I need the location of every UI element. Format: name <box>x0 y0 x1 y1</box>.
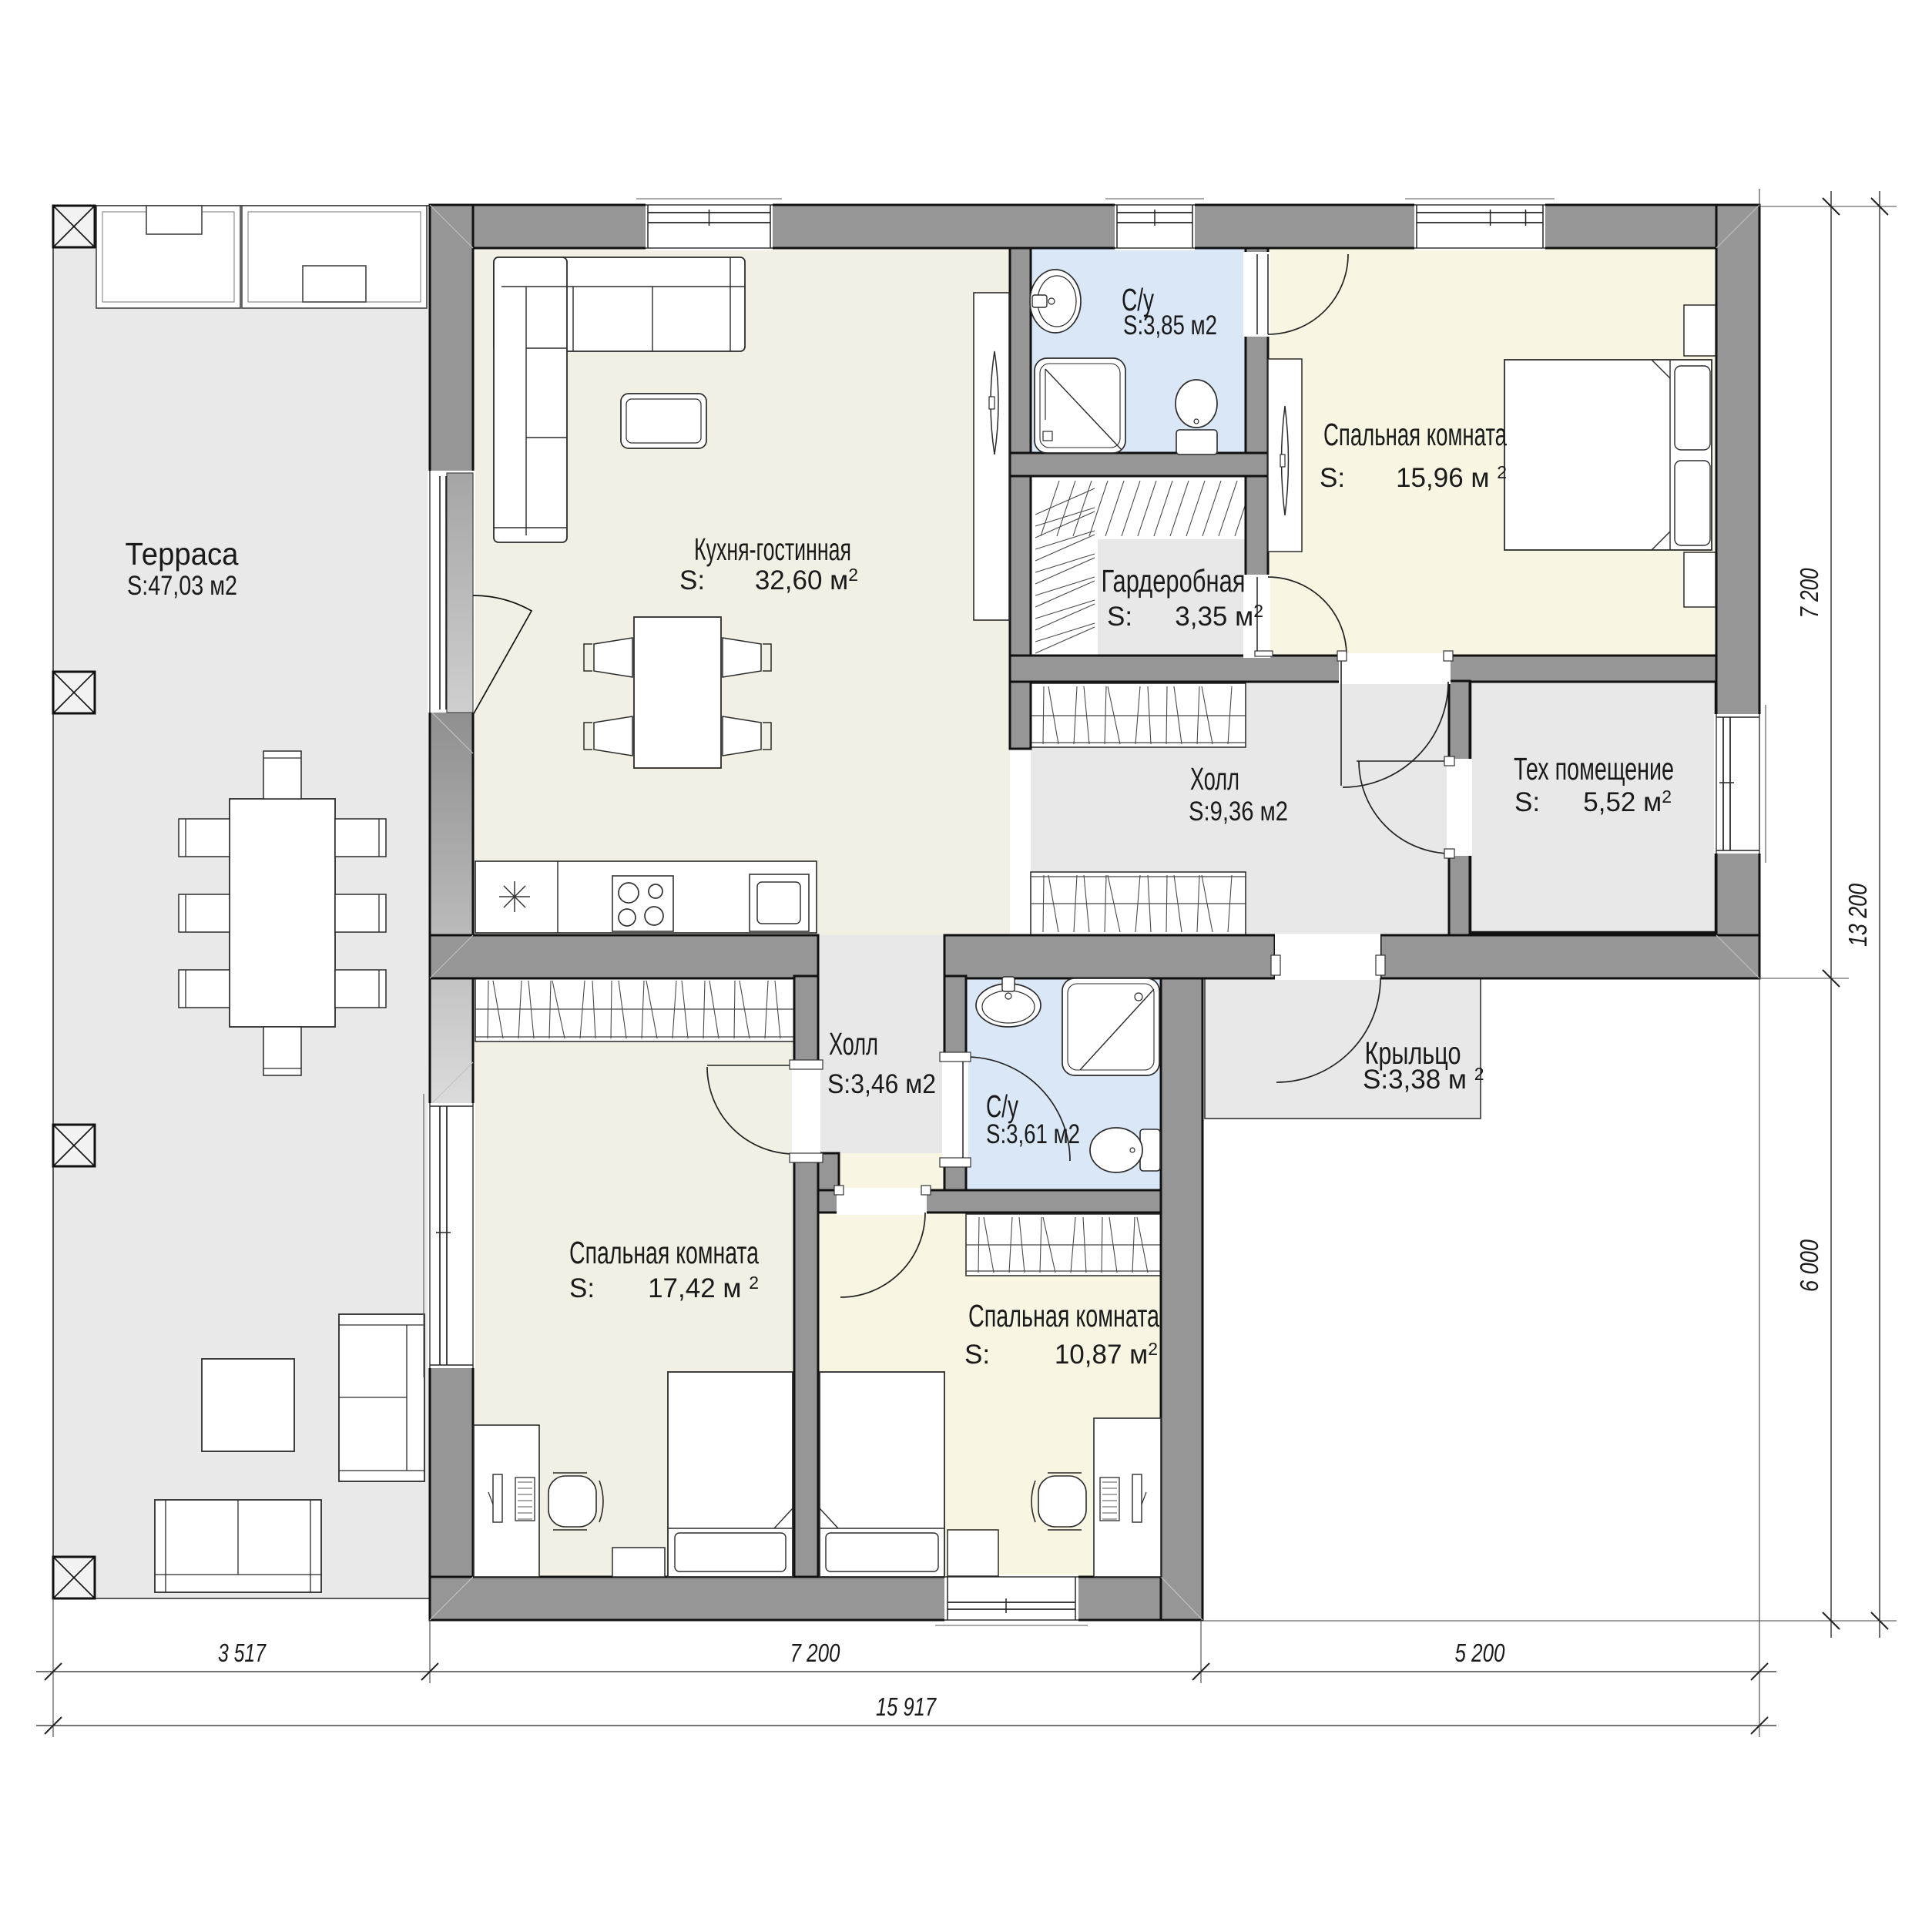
svg-text:3,35 м2: 3,35 м2 <box>1175 601 1263 632</box>
svg-text:Кухня-гостинная: Кухня-гостинная <box>694 532 851 567</box>
svg-text:3 517: 3 517 <box>218 1639 267 1667</box>
svg-text:13 200: 13 200 <box>1843 883 1872 947</box>
svg-text:S:3,85 м2: S:3,85 м2 <box>1123 310 1217 340</box>
svg-text:5 200: 5 200 <box>1455 1639 1505 1667</box>
svg-text:32,60 м2: 32,60 м2 <box>755 565 858 595</box>
svg-text:S:: S: <box>1107 602 1132 632</box>
svg-text:Терраса: Терраса <box>126 536 239 572</box>
svg-text:7 200: 7 200 <box>1795 568 1823 618</box>
svg-text:S:9,36 м2: S:9,36 м2 <box>1189 797 1288 827</box>
svg-text:S:: S: <box>569 1273 595 1303</box>
svg-text:17,42 м 2: 17,42 м 2 <box>648 1273 759 1303</box>
svg-text:Гардеробная: Гардеробная <box>1102 563 1246 599</box>
svg-text:7 200: 7 200 <box>790 1639 840 1667</box>
svg-text:S:3,38 м 2: S:3,38 м 2 <box>1363 1064 1484 1095</box>
svg-text:S:: S: <box>1514 787 1540 817</box>
svg-text:S:: S: <box>964 1340 990 1370</box>
svg-text:15,96 м 2: 15,96 м 2 <box>1396 462 1507 493</box>
svg-text:10,87 м2: 10,87 м2 <box>1055 1339 1158 1370</box>
svg-text:Спальная комната: Спальная комната <box>968 1298 1159 1333</box>
svg-text:S:: S: <box>1320 463 1345 493</box>
svg-text:Холл: Холл <box>1190 761 1239 797</box>
svg-text:6 000: 6 000 <box>1795 1239 1823 1292</box>
svg-text:Спальная комната: Спальная комната <box>1323 417 1507 452</box>
svg-text:S:3,46 м2: S:3,46 м2 <box>827 1069 936 1099</box>
svg-text:5,52 м2: 5,52 м2 <box>1583 787 1672 817</box>
svg-text:Спальная комната: Спальная комната <box>569 1235 759 1270</box>
svg-text:15 917: 15 917 <box>876 1692 937 1721</box>
svg-text:Холл: Холл <box>829 1026 878 1062</box>
svg-text:Тех помещение: Тех помещение <box>1514 751 1674 787</box>
svg-text:S:47,03 м2: S:47,03 м2 <box>127 571 237 601</box>
svg-text:S:3,61 м2: S:3,61 м2 <box>986 1119 1080 1149</box>
svg-text:S:: S: <box>679 565 705 595</box>
